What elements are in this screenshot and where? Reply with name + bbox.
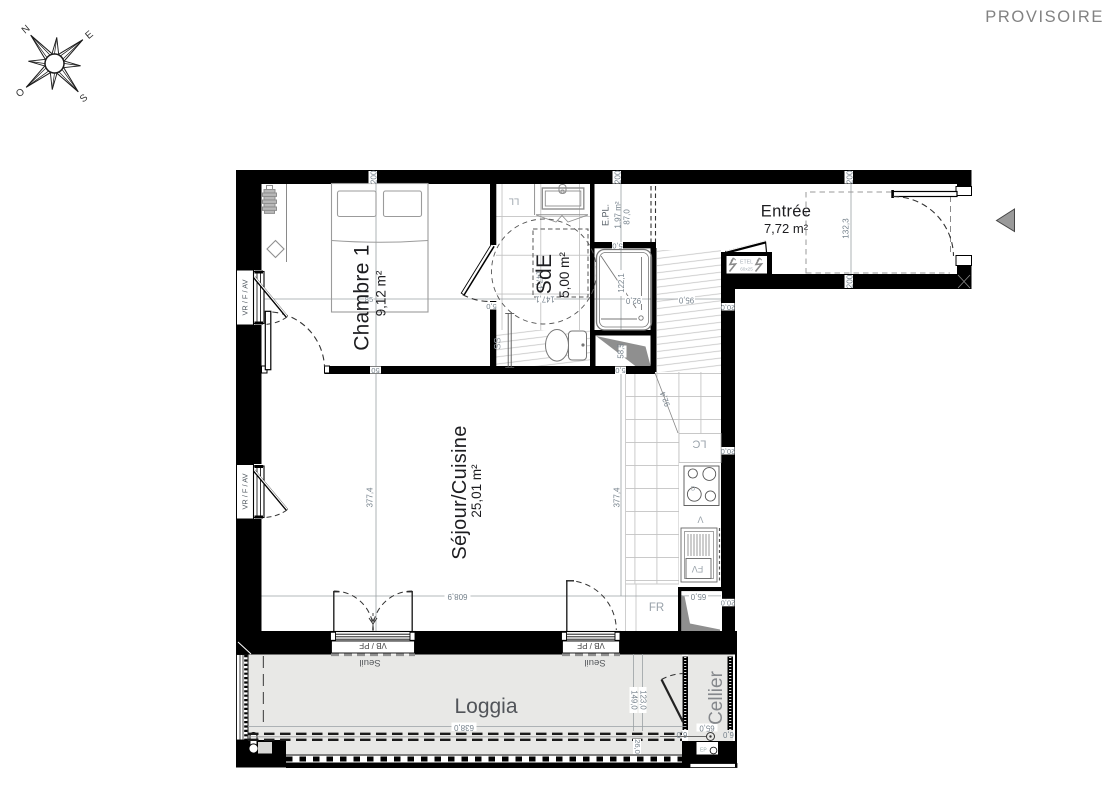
- svg-text:608,9: 608,9: [447, 592, 468, 601]
- svg-text:V: V: [697, 515, 703, 525]
- svg-text:58,5: 58,5: [617, 343, 626, 359]
- svg-text:PROVISOIRE: PROVISOIRE: [985, 8, 1104, 26]
- svg-text:200: 200: [846, 274, 855, 288]
- svg-text:5,0: 5,0: [486, 302, 497, 311]
- svg-text:FR: FR: [649, 602, 664, 614]
- svg-text:87,0: 87,0: [623, 209, 632, 225]
- svg-text:Chambre 1: Chambre 1: [351, 244, 374, 351]
- svg-text:Seuil: Seuil: [584, 657, 605, 668]
- svg-text:SdE: SdE: [533, 254, 556, 295]
- svg-text:95,0: 95,0: [678, 295, 694, 304]
- svg-text:200: 200: [846, 170, 855, 184]
- svg-text:5,0: 5,0: [615, 366, 626, 375]
- svg-text:65,0: 65,0: [690, 592, 706, 601]
- svg-text:25,01 m²: 25,01 m²: [469, 464, 484, 518]
- svg-text:7,72 m²: 7,72 m²: [764, 221, 809, 236]
- svg-text:20,0: 20,0: [721, 303, 736, 312]
- svg-text:Entrée: Entrée: [761, 203, 811, 221]
- svg-text:377,4: 377,4: [613, 487, 622, 508]
- svg-text:EP: EP: [700, 748, 707, 754]
- svg-text:ETEL: ETEL: [740, 260, 753, 266]
- svg-text:6,0: 6,0: [676, 730, 688, 739]
- svg-text:200: 200: [614, 170, 623, 184]
- svg-text:SS: SS: [493, 337, 503, 349]
- svg-text:123,0: 123,0: [638, 690, 647, 710]
- svg-text:638,0: 638,0: [453, 723, 474, 732]
- svg-text:149,0: 149,0: [629, 690, 638, 710]
- svg-text:LL: LL: [509, 195, 520, 206]
- svg-text:147,1: 147,1: [535, 294, 555, 303]
- svg-text:LC: LC: [692, 438, 706, 450]
- svg-text:92,0: 92,0: [625, 296, 641, 305]
- svg-text:Cellier: Cellier: [706, 670, 727, 725]
- svg-text:Loggia: Loggia: [454, 695, 517, 718]
- svg-text:50: 50: [371, 366, 379, 375]
- svg-text:1,97 m²: 1,97 m²: [614, 201, 623, 228]
- svg-text:6,0: 6,0: [722, 730, 734, 739]
- svg-text:132,3: 132,3: [842, 218, 851, 239]
- svg-text:E.PL.: E.PL.: [601, 204, 611, 226]
- svg-text:VB / PF: VB / PF: [359, 641, 387, 650]
- svg-text:VR / F / AV: VR / F / AV: [241, 279, 250, 315]
- svg-text:9,12 m²: 9,12 m²: [374, 270, 389, 316]
- svg-text:VB / PF: VB / PF: [577, 641, 605, 650]
- svg-text:5,00 m²: 5,00 m²: [557, 252, 572, 298]
- svg-text:C: C: [690, 484, 695, 491]
- svg-text:122,1: 122,1: [617, 273, 626, 293]
- svg-text:Séjour/Cuisine: Séjour/Cuisine: [449, 425, 471, 559]
- svg-text:FV: FV: [692, 564, 704, 574]
- svg-text:60x25: 60x25: [740, 267, 753, 272]
- svg-text:26,0: 26,0: [633, 739, 642, 754]
- svg-text:Seuil: Seuil: [359, 657, 380, 668]
- svg-text:VR / F / AV: VR / F / AV: [241, 473, 250, 509]
- svg-text:377,4: 377,4: [366, 487, 375, 508]
- svg-text:20,0: 20,0: [721, 599, 736, 608]
- svg-text:200: 200: [370, 170, 379, 184]
- svg-text:20,0: 20,0: [721, 447, 736, 456]
- svg-text:5,0: 5,0: [612, 242, 623, 251]
